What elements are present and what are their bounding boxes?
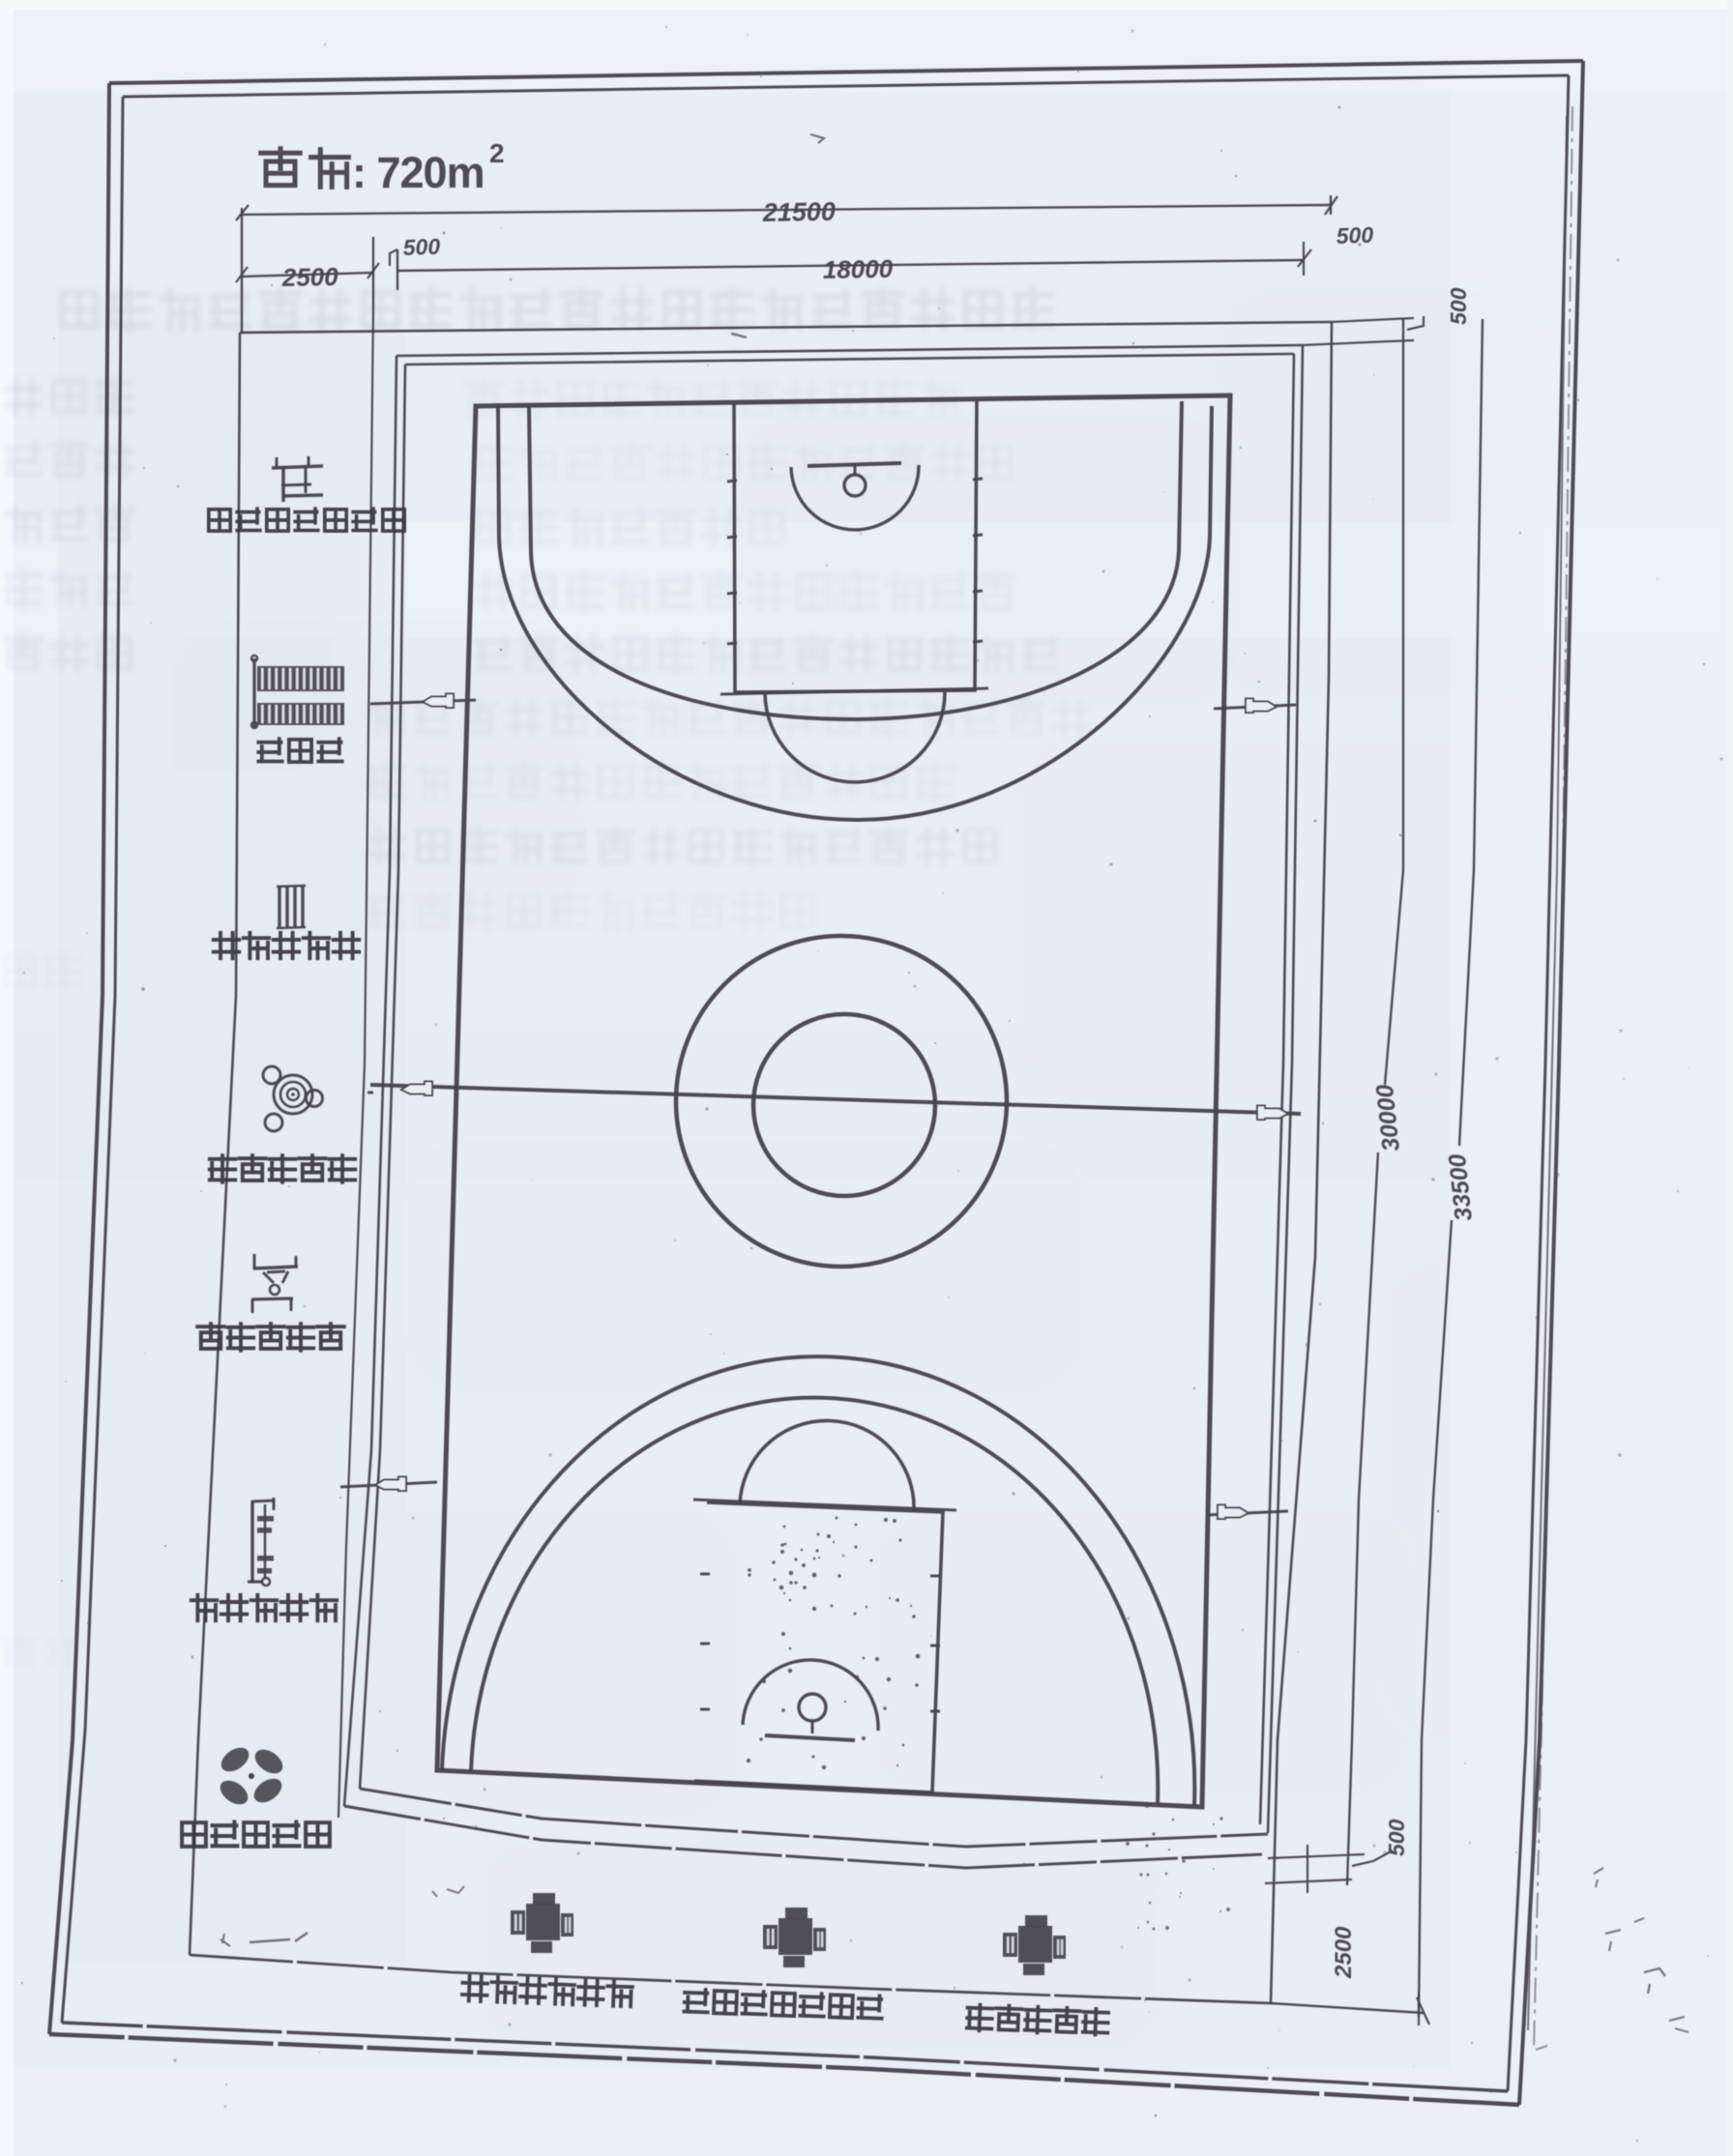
- svg-text:500: 500: [1336, 222, 1373, 248]
- svg-text:18000: 18000: [823, 254, 894, 284]
- svg-text:2500: 2500: [281, 262, 339, 292]
- svg-text:500: 500: [1446, 287, 1471, 325]
- svg-text:500: 500: [402, 234, 440, 260]
- svg-text:2500: 2500: [1331, 1926, 1357, 1979]
- svg-text:: 720m: : 720m: [352, 148, 485, 197]
- svg-text:21500: 21500: [762, 197, 837, 227]
- svg-text:2: 2: [489, 138, 505, 168]
- svg-text:500: 500: [1384, 1819, 1409, 1856]
